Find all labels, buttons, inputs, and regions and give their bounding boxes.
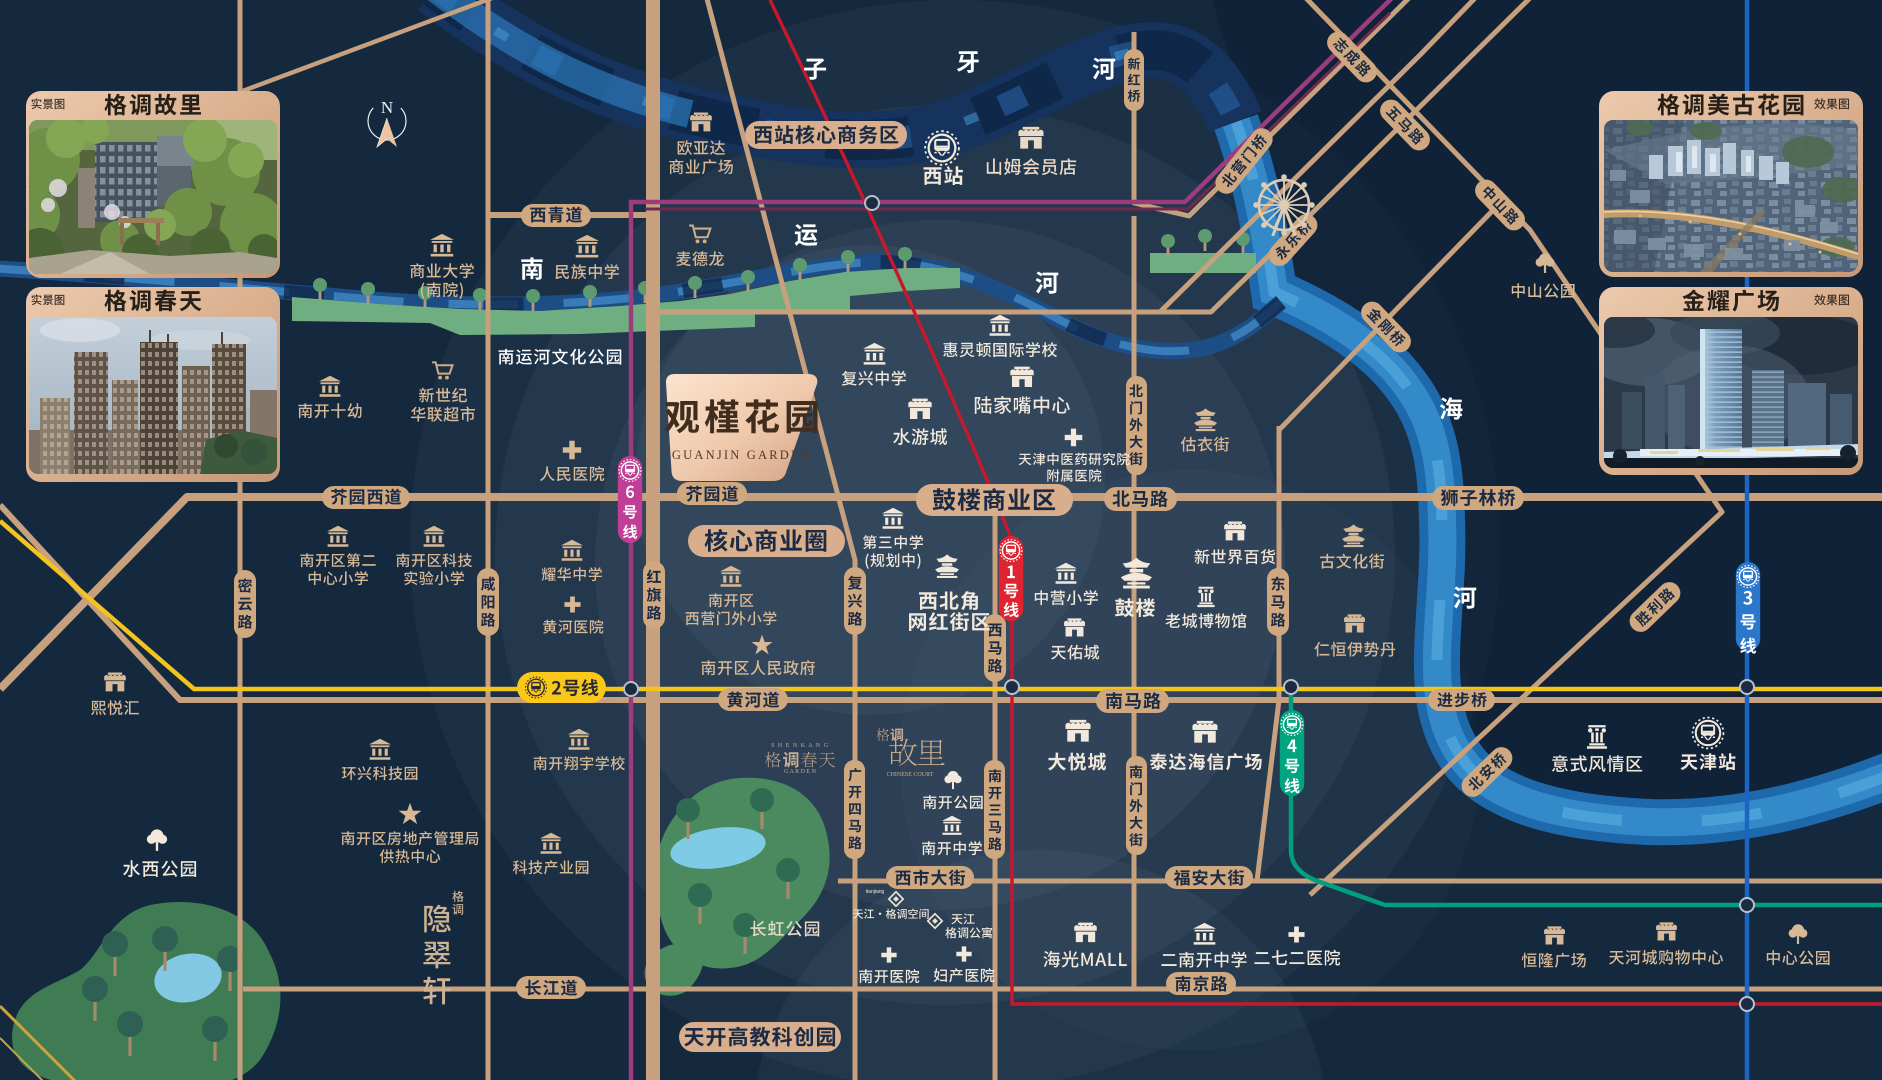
svg-text:GUANJIN GARDEN: GUANJIN GARDEN — [672, 448, 812, 462]
svg-text:S H E N K A N G: S H E N K A N G — [771, 743, 829, 749]
svg-text:CHINESE COURT: CHINESE COURT — [887, 772, 934, 778]
svg-text:G A R D E N: G A R D E N — [784, 769, 817, 775]
svg-text:N: N — [381, 98, 393, 117]
svg-text:tianjiang: tianjiang — [866, 889, 885, 895]
